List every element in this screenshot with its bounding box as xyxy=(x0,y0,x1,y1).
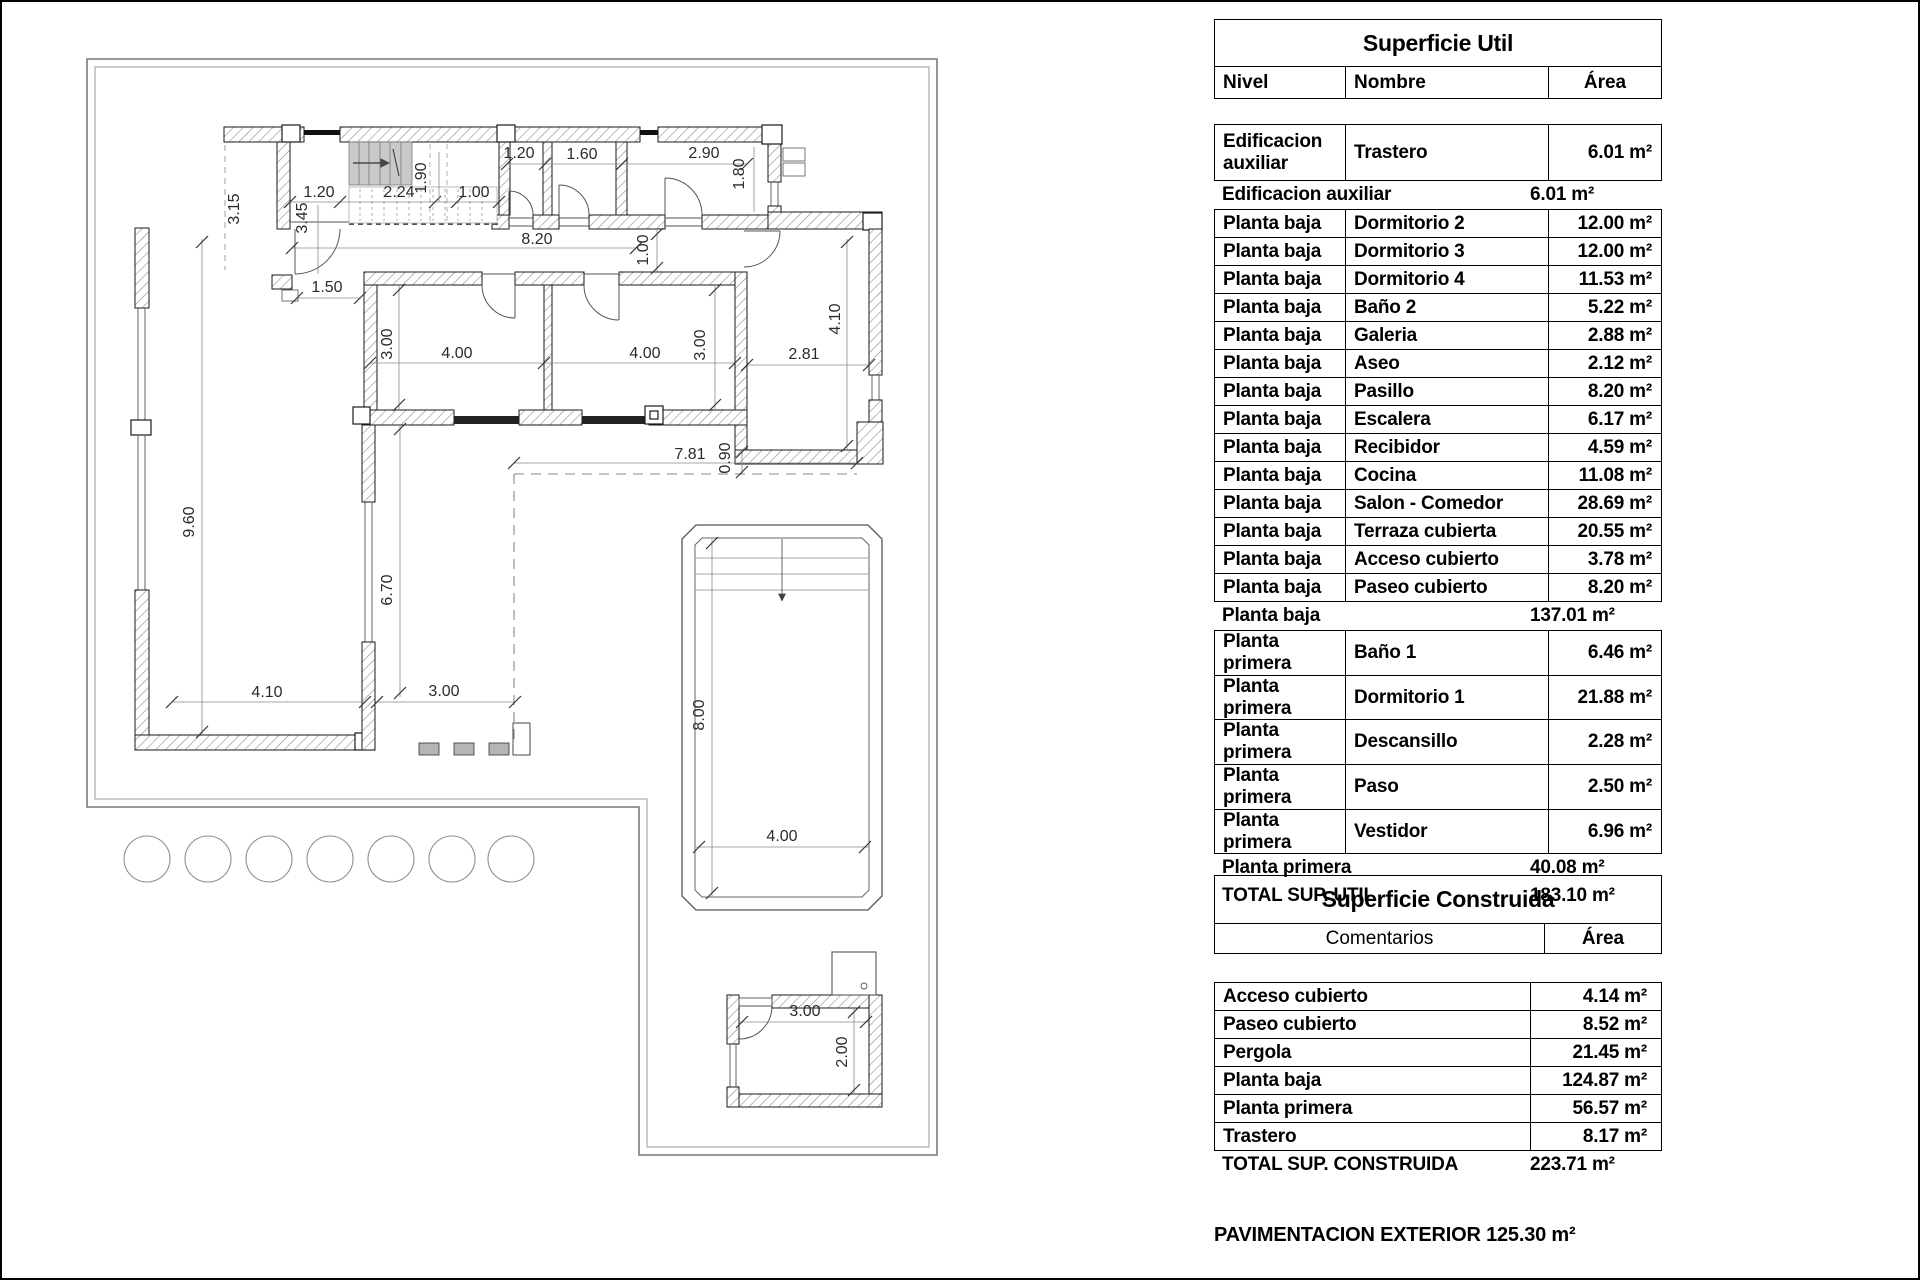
table-cell: Trastero xyxy=(1215,1123,1530,1150)
table-cell: 223.71 m² xyxy=(1530,1154,1662,1176)
table-cell: 124.87 m² xyxy=(1530,1067,1661,1094)
dim-label: 1.00 xyxy=(458,184,489,201)
table-row: Planta primeraDescansillo2.28 m² xyxy=(1214,719,1662,765)
table-cell: 2.12 m² xyxy=(1548,350,1661,377)
table-cell: Dormitorio 2 xyxy=(1345,210,1548,237)
dim-label: 3.00 xyxy=(692,329,709,360)
dim-label: 2.24 xyxy=(383,184,414,201)
table-cell: 6.96 m² xyxy=(1548,810,1661,854)
outbuilding xyxy=(727,952,882,1107)
table-row: Planta bajaGaleria2.88 m² xyxy=(1214,321,1662,350)
table-cell: Recibidor xyxy=(1345,434,1548,461)
entrance-step xyxy=(783,163,805,176)
table-row: Planta bajaCocina11.08 m² xyxy=(1214,461,1662,490)
table-cell: Acceso cubierto xyxy=(1345,546,1548,573)
dim-label: 6.70 xyxy=(379,574,396,605)
table-title: Superficie Util xyxy=(1214,19,1662,67)
dim-label: 2.90 xyxy=(688,145,719,162)
table-cell: 4.59 m² xyxy=(1548,434,1661,461)
table-row: Planta bajaDormitorio 212.00 m² xyxy=(1214,209,1662,238)
table-cell: Paseo cubierto xyxy=(1215,1011,1530,1038)
table-cell: Terraza cubierta xyxy=(1345,518,1548,545)
superficie-util-rows: Edificacion auxiliarTrastero6.01 m²Edifi… xyxy=(1214,124,1662,910)
dim-label: 3.45 xyxy=(294,202,311,233)
dim-label: 1.80 xyxy=(731,158,748,189)
dim-label: 4.00 xyxy=(441,345,472,362)
table-row: Planta primera56.57 m² xyxy=(1214,1094,1662,1123)
table-cell: 6.01 m² xyxy=(1530,184,1662,206)
table-cell: 6.17 m² xyxy=(1548,406,1661,433)
table-cell: Planta primera xyxy=(1215,720,1345,764)
pergola-columns xyxy=(419,723,530,755)
table-cell: Planta primera xyxy=(1215,810,1345,854)
table-cell: Dormitorio 4 xyxy=(1345,266,1548,293)
table-cell: Pasillo xyxy=(1345,378,1548,405)
table-cell: Pergola xyxy=(1215,1039,1530,1066)
table-cell: 4.14 m² xyxy=(1530,983,1661,1010)
dim-label: 2.81 xyxy=(788,346,819,363)
table-row: TOTAL SUP. CONSTRUIDA223.71 m² xyxy=(1214,1151,1662,1179)
table-row: Planta bajaTerraza cubierta20.55 m² xyxy=(1214,517,1662,546)
entrance-step xyxy=(783,148,805,161)
table-cell: Planta baja xyxy=(1215,350,1345,377)
column-header: Comentarios xyxy=(1215,924,1544,953)
table-row: Planta bajaDormitorio 411.53 m² xyxy=(1214,265,1662,294)
table-cell: 28.69 m² xyxy=(1548,490,1661,517)
superficie-util-table: Superficie Util Nivel Nombre Área Edific… xyxy=(1214,19,1662,910)
table-cell: Salon - Comedor xyxy=(1345,490,1548,517)
table-cell: Planta baja xyxy=(1215,462,1345,489)
table-row: Planta baja137.01 m² xyxy=(1214,602,1662,630)
table-cell: 20.55 m² xyxy=(1548,518,1661,545)
sliding-window xyxy=(454,416,519,424)
table-cell: 11.53 m² xyxy=(1548,266,1661,293)
dim-label: 1.90 xyxy=(413,162,430,193)
table-cell: Cocina xyxy=(1345,462,1548,489)
table-cell: 11.08 m² xyxy=(1548,462,1661,489)
table-cell: Paso xyxy=(1345,765,1548,809)
dim-label: 0.90 xyxy=(717,442,734,473)
table-row: Planta primeraDormitorio 121.88 m² xyxy=(1214,675,1662,721)
table-cell: 3.78 m² xyxy=(1548,546,1661,573)
table-row: Planta bajaEscalera6.17 m² xyxy=(1214,405,1662,434)
table-cell: 2.50 m² xyxy=(1548,765,1661,809)
table-row: Planta primeraPaso2.50 m² xyxy=(1214,764,1662,810)
table-cell: 6.46 m² xyxy=(1548,631,1661,675)
dim-label: 8.20 xyxy=(521,231,552,248)
column-header: Nombre xyxy=(1345,67,1548,98)
dim-label: 3.00 xyxy=(428,683,459,700)
dim-label: 1.50 xyxy=(311,279,342,296)
exterior-paving-note: PAVIMENTACION EXTERIOR 125.30 m² xyxy=(1214,1224,1575,1247)
table-row: Planta bajaRecibidor4.59 m² xyxy=(1214,433,1662,462)
dim-label: 3.00 xyxy=(789,1003,820,1020)
dim-label: 4.10 xyxy=(251,684,282,701)
table-cell: Planta primera xyxy=(1215,765,1345,809)
table-cell: Edificacion auxiliar xyxy=(1214,184,1530,206)
table-cell: Trastero xyxy=(1345,125,1548,180)
table-row: Planta bajaPaseo cubierto8.20 m² xyxy=(1214,573,1662,602)
table-cell: 2.28 m² xyxy=(1548,720,1661,764)
table-cell: Planta baja xyxy=(1215,1067,1530,1094)
column-header: Área xyxy=(1544,924,1661,953)
dim-label: 4.10 xyxy=(827,303,844,334)
window-lintel xyxy=(304,130,340,135)
table-cell: Planta primera xyxy=(1215,1095,1530,1122)
table-cell: Escalera xyxy=(1345,406,1548,433)
table-row: Planta baja124.87 m² xyxy=(1214,1066,1662,1095)
table-cell: Planta baja xyxy=(1215,574,1345,601)
column-header-row: Nivel Nombre Área xyxy=(1214,67,1662,99)
table-cell: Edificacion auxiliar xyxy=(1215,125,1345,180)
table-row: Planta bajaPasillo8.20 m² xyxy=(1214,377,1662,406)
table-cell: Planta baja xyxy=(1215,266,1345,293)
sliding-window xyxy=(582,416,649,424)
table-cell: Dormitorio 3 xyxy=(1345,238,1548,265)
table-cell: Planta baja xyxy=(1215,238,1345,265)
table-cell: Planta baja xyxy=(1215,322,1345,349)
tree-circles xyxy=(124,836,534,882)
table-cell: Dormitorio 1 xyxy=(1345,676,1548,720)
dim-label: 1.60 xyxy=(566,146,597,163)
table-row: Edificacion auxiliarTrastero6.01 m² xyxy=(1214,124,1662,181)
table-cell: Planta baja xyxy=(1215,518,1345,545)
table-cell: Baño 1 xyxy=(1345,631,1548,675)
table-cell: Planta baja xyxy=(1214,605,1530,627)
table-cell: Aseo xyxy=(1345,350,1548,377)
table-cell: Planta baja xyxy=(1215,434,1345,461)
table-row: Planta bajaAcceso cubierto3.78 m² xyxy=(1214,545,1662,574)
table-row: Planta primeraBaño 16.46 m² xyxy=(1214,630,1662,676)
table-row: Paseo cubierto8.52 m² xyxy=(1214,1010,1662,1039)
table-row: Trastero8.17 m² xyxy=(1214,1122,1662,1151)
table-cell: 8.20 m² xyxy=(1548,574,1661,601)
table-cell: 56.57 m² xyxy=(1530,1095,1661,1122)
table-cell: Vestidor xyxy=(1345,810,1548,854)
table-cell: 12.00 m² xyxy=(1548,210,1661,237)
superficie-construida-rows: Acceso cubierto4.14 m²Paseo cubierto8.52… xyxy=(1214,982,1662,1179)
table-cell: Planta primera xyxy=(1215,676,1345,720)
column-header: Área xyxy=(1548,67,1661,98)
dim-label: 3.00 xyxy=(379,328,396,359)
dim-label: 8.00 xyxy=(691,699,708,730)
column-header: Nivel xyxy=(1215,67,1345,98)
table-row: Acceso cubierto4.14 m² xyxy=(1214,982,1662,1011)
table-cell: 8.20 m² xyxy=(1548,378,1661,405)
column-header-row: Comentarios Área xyxy=(1214,924,1662,954)
dim-label: 1.00 xyxy=(635,234,652,265)
table-cell: Planta primera xyxy=(1215,631,1345,675)
table-row: Planta bajaDormitorio 312.00 m² xyxy=(1214,237,1662,266)
table-cell: Acceso cubierto xyxy=(1215,983,1530,1010)
table-row: Planta bajaSalon - Comedor28.69 m² xyxy=(1214,489,1662,518)
table-cell: Planta baja xyxy=(1215,406,1345,433)
floor-plan: 3.15 1.20 3.45 2.24 1.90 1.00 1.20 1.60 … xyxy=(2,2,1002,1280)
table-row: Planta primeraVestidor6.96 m² xyxy=(1214,809,1662,855)
dim-label: 2.00 xyxy=(834,1036,851,1067)
table-row: Pergola21.45 m² xyxy=(1214,1038,1662,1067)
table-cell: 6.01 m² xyxy=(1548,125,1661,180)
table-cell: Baño 2 xyxy=(1345,294,1548,321)
equipment-box xyxy=(832,952,876,995)
superficie-construida-table: Superficie Construida Comentarios Área A… xyxy=(1214,875,1662,1179)
table-cell: Planta baja xyxy=(1215,294,1345,321)
table-cell: Galeria xyxy=(1345,322,1548,349)
table-cell: 137.01 m² xyxy=(1530,605,1662,627)
table-cell: 8.52 m² xyxy=(1530,1011,1661,1038)
sheet: 3.15 1.20 3.45 2.24 1.90 1.00 1.20 1.60 … xyxy=(0,0,1920,1280)
table-title: Superficie Construida xyxy=(1214,875,1662,924)
table-cell: 21.88 m² xyxy=(1548,676,1661,720)
table-row: Edificacion auxiliar6.01 m² xyxy=(1214,181,1662,209)
table-cell: Planta baja xyxy=(1215,546,1345,573)
table-cell: 12.00 m² xyxy=(1548,238,1661,265)
table-cell: 2.88 m² xyxy=(1548,322,1661,349)
table-cell: 21.45 m² xyxy=(1530,1039,1661,1066)
table-cell: Planta baja xyxy=(1215,490,1345,517)
table-cell: Paseo cubierto xyxy=(1345,574,1548,601)
table-cell: Planta baja xyxy=(1215,378,1345,405)
table-cell: 5.22 m² xyxy=(1548,294,1661,321)
table-row: Planta bajaAseo2.12 m² xyxy=(1214,349,1662,378)
dim-label: 1.20 xyxy=(303,184,334,201)
dim-label: 1.20 xyxy=(503,145,534,162)
table-cell: Planta baja xyxy=(1215,210,1345,237)
window-lintel xyxy=(640,130,658,135)
table-cell: Descansillo xyxy=(1345,720,1548,764)
table-cell: TOTAL SUP. CONSTRUIDA xyxy=(1214,1154,1530,1176)
table-cell: 8.17 m² xyxy=(1530,1123,1661,1150)
dim-label: 7.81 xyxy=(674,446,705,463)
dim-label: 9.60 xyxy=(181,506,198,537)
dim-label: 4.00 xyxy=(766,828,797,845)
dim-label: 4.00 xyxy=(629,345,660,362)
table-row: Planta bajaBaño 25.22 m² xyxy=(1214,293,1662,322)
dim-label: 3.15 xyxy=(226,193,243,224)
